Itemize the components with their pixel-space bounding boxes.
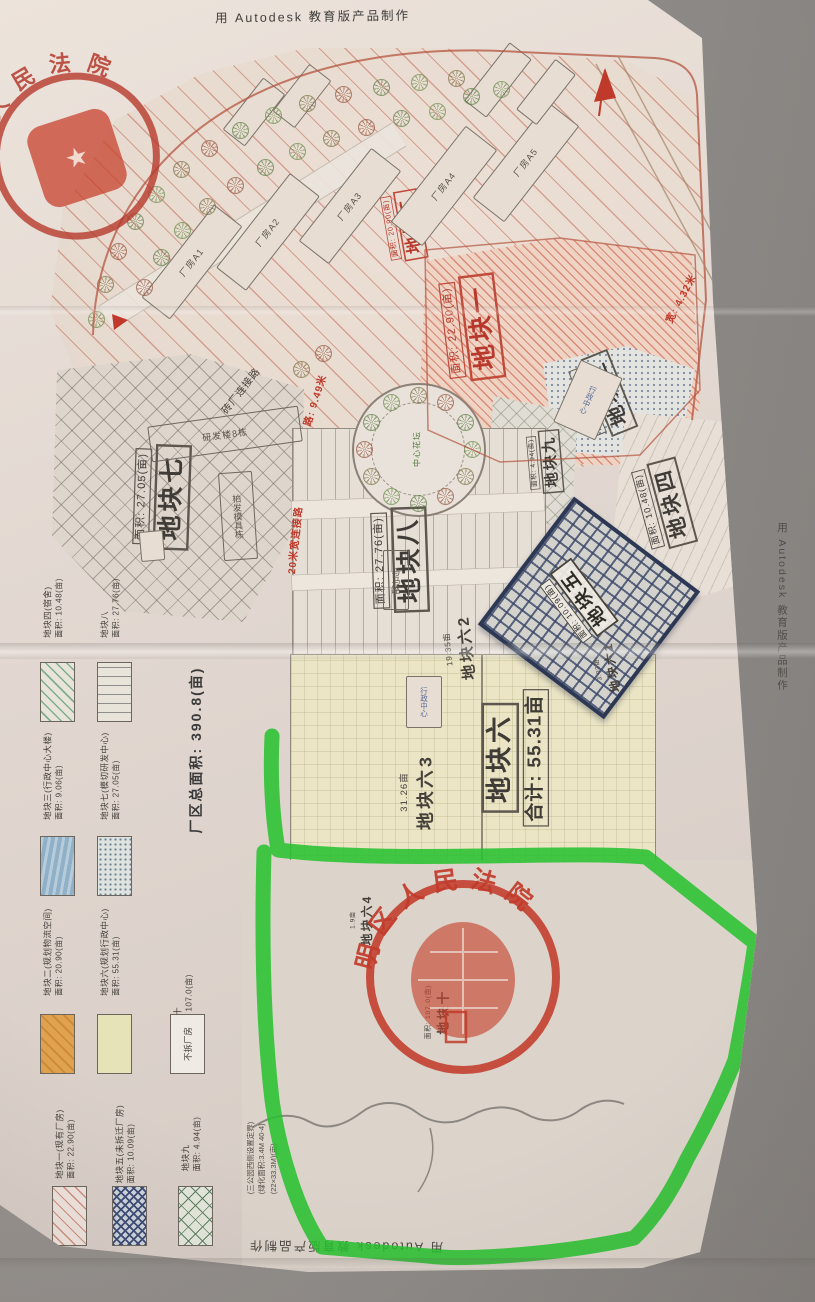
legend-label: 地块七(模切研发中心) <box>99 732 111 820</box>
legend-area: 面积: 27.76(亩) <box>111 578 122 638</box>
legend-swatch-p9 <box>178 1186 213 1246</box>
legend-label: 地块九 <box>180 1117 192 1172</box>
paper-sheet: 面积: 22.90(亩)地块一面积: 20.90(亩)地块二面积: 9.06(亩… <box>0 0 815 1302</box>
legend-text-p1: 地块一(现有厂房)面积: 22.90(亩) <box>52 1092 78 1196</box>
court-seal: 明区人民法院 <box>348 862 578 1102</box>
legend-text: 地块一(现有厂房)面积: 22.90(亩) <box>54 1109 77 1179</box>
legend-text-p2: 地块二(规划物流空间)面积: 20.90(亩) <box>40 900 66 1004</box>
legend-area: 面积: 4.94(亩) <box>192 1117 203 1172</box>
legend-label: 地块八 <box>99 578 111 638</box>
legend-swatch-p2 <box>40 1014 75 1074</box>
photographed-site-plan: 用 Autodesk 教育版产品制作 面积: 22.90(亩)地块一面积: 2 <box>0 0 815 1302</box>
legend-text-p3: 地块三(行政中心大楼)面积: 9.06(亩) <box>40 724 66 828</box>
legend-text: 地块四(宿舍)面积: 10.48(亩) <box>42 578 65 638</box>
legend-text-p5: 地块五(未拆迁厂房)面积: 10.09(亩) <box>112 1092 138 1196</box>
legend-area: 面积: 55.31(亩) <box>111 908 122 996</box>
legend-text: 地块三(行政中心大楼)面积: 9.06(亩) <box>42 732 65 820</box>
legend-swatch-p8 <box>97 662 132 722</box>
legend-text: 地块八面积: 27.76(亩) <box>99 578 122 638</box>
legend-swatch-p4 <box>40 662 75 722</box>
legend-label: 地块五(未拆迁厂房) <box>114 1105 126 1184</box>
legend-area: 面积: 10.09(亩) <box>126 1105 137 1184</box>
legend-label: 地块四(宿舍) <box>42 578 54 638</box>
legend-label: 地块一(现有厂房) <box>54 1109 66 1179</box>
legend-text: 地块六(规划行政中心)面积: 55.31(亩) <box>99 908 122 996</box>
legend-area: 面积: 20.90(亩) <box>54 908 65 996</box>
legend-keep-label: 不拆厂房 <box>182 1027 194 1061</box>
legend-text: 地块九面积: 4.94(亩) <box>180 1117 203 1172</box>
legend-text-p8: 地块八面积: 27.76(亩) <box>97 556 123 660</box>
legend-area: 面积: 22.90(亩) <box>66 1109 77 1179</box>
legend-text: 地块七(模切研发中心)面积: 27.05(亩) <box>99 732 122 820</box>
legend-text-p9: 地块九面积: 4.94(亩) <box>178 1092 204 1196</box>
legend-text-p4: 地块四(宿舍)面积: 10.48(亩) <box>40 556 66 660</box>
legend-text: 地块二(规划物流空间)面积: 20.90(亩) <box>42 908 65 996</box>
legend-area: 面积: 9.06(亩) <box>54 732 65 820</box>
legend-text: 地块五(未拆迁厂房)面积: 10.09(亩) <box>114 1105 137 1184</box>
legend-label: 地块六(规划行政中心) <box>99 908 111 996</box>
legend-label: 地块三(行政中心大楼) <box>42 732 54 820</box>
legend-swatch-p5 <box>112 1186 147 1246</box>
legend-swatch-p7 <box>97 836 132 896</box>
legend-swatch-keep: 不拆厂房 <box>170 1014 205 1074</box>
legend-area: 面积: 27.05(亩) <box>111 732 122 820</box>
legend-swatch-p3 <box>40 836 75 896</box>
legend-text-p7: 地块七(模切研发中心)面积: 27.05(亩) <box>97 724 123 828</box>
legend-text-p6: 地块六(规划行政中心)面积: 55.31(亩) <box>97 900 123 1004</box>
legend-label: 地块二(规划物流空间) <box>42 908 54 996</box>
legend-swatch-p6 <box>97 1014 132 1074</box>
legend-area: 面积: 10.48(亩) <box>54 578 65 638</box>
legend-swatch-p1 <box>52 1186 87 1246</box>
